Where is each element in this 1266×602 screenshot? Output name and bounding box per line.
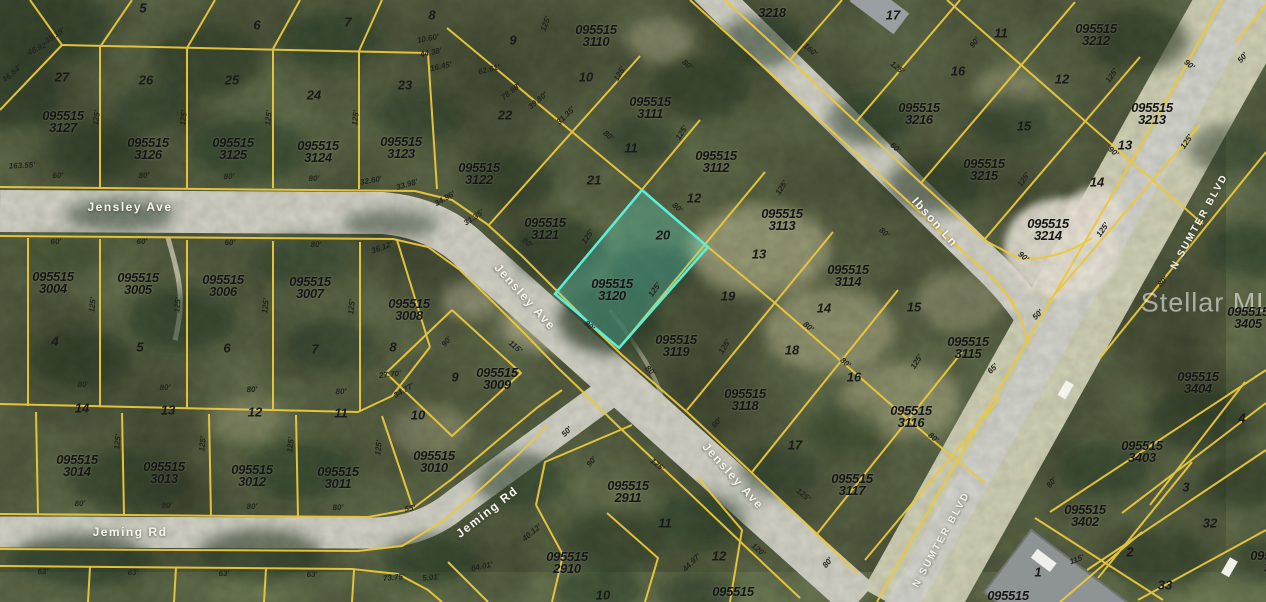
map-canvas[interactable] xyxy=(0,0,1266,602)
aerial-parcel-map[interactable]: Stellar MLS 095515 3127095515 3126095515… xyxy=(0,0,1266,602)
